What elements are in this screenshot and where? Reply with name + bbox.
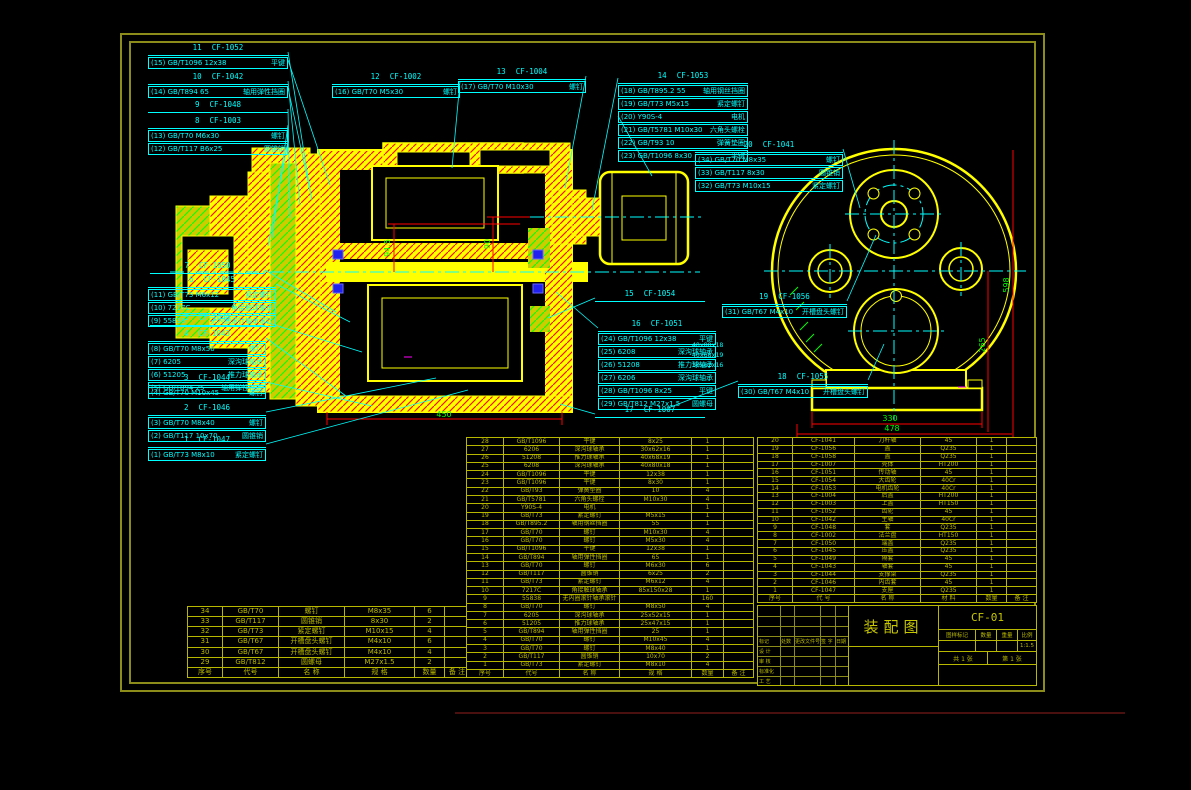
table-row: 10CF-1042主轴40Cr1	[758, 516, 1036, 524]
table-row: 3GB/T70螺钉M8x401	[467, 644, 753, 652]
callout-title: 3CF-1044	[148, 374, 266, 386]
callout-row: (19) GB/T73 M5x15紧定螺钉	[618, 98, 748, 110]
table-cell: 8x30	[344, 617, 414, 626]
table-cell: 1	[976, 462, 1006, 469]
table-cell: 1	[976, 548, 1006, 555]
table-cell: 21	[467, 496, 503, 503]
table-cell: 1	[976, 485, 1006, 492]
table-cell: 4	[467, 637, 503, 644]
callout-row: (8) GB/T70 M8x50螺钉	[148, 343, 266, 355]
table-cell	[723, 579, 753, 586]
role-standardize: 标准化	[759, 668, 774, 675]
table-cell: 紧定螺钉	[278, 627, 344, 636]
table-cell: 平键	[559, 438, 619, 445]
table-cell: 名 称	[278, 668, 344, 677]
table-cell: 5	[758, 556, 792, 563]
title-block-empty-cell	[939, 665, 1036, 685]
table-cell: 推力球轴承	[559, 620, 619, 627]
table-cell: GB/T1096	[503, 479, 559, 486]
table-cell: CF-1056	[792, 446, 854, 453]
table-cell: 10	[758, 517, 792, 524]
table-cell: CF-1050	[792, 540, 854, 547]
table-cell	[1006, 501, 1036, 508]
callout-title: 12CF-1002	[332, 73, 460, 85]
table-row: 8GB/T70螺钉M8x504	[467, 603, 753, 611]
role-process: 工 艺	[759, 678, 771, 685]
table-cell	[723, 504, 753, 511]
table-cell: 1	[691, 521, 723, 528]
table-cell: 螺钉	[559, 537, 619, 544]
table-row: 17GB/T70螺钉M10x304	[467, 528, 753, 536]
table-cell: 1	[976, 572, 1006, 579]
table-cell: 紧定螺钉	[559, 513, 619, 520]
table-cell: 盖	[854, 454, 920, 461]
part-callout: 15CF-1054	[595, 290, 705, 302]
table-cell: Y90S-4	[503, 504, 559, 511]
dim-478: 478	[884, 424, 899, 433]
table-cell: Q235	[920, 524, 976, 531]
table-cell: 6205	[503, 612, 559, 619]
callout-row: (31) GB/T67 M4x10开槽盘头螺钉	[722, 306, 847, 318]
table-row: 13GB/T70螺钉M6x306	[467, 561, 753, 569]
table-cell	[723, 645, 753, 652]
callout-title: 6CF-1045	[148, 276, 276, 288]
table-cell: GB/T70	[503, 604, 559, 611]
table-cell: 1	[691, 546, 723, 553]
table-cell	[723, 637, 753, 644]
table-cell: 40Cr	[920, 477, 976, 484]
table-cell	[723, 471, 753, 478]
table-cell: 法兰盘	[854, 532, 920, 539]
table-cell: GB/T70	[503, 645, 559, 652]
table-cell: GB/T73	[503, 513, 559, 520]
table-row: 107217C角接触球轴承85x150x281	[467, 586, 753, 594]
table-cell: 1	[976, 556, 1006, 563]
table-cell: 15	[467, 546, 503, 553]
table-cell: 2	[691, 653, 723, 660]
table-cell: 4	[691, 604, 723, 611]
table-cell: 1	[976, 564, 1006, 571]
table-cell: CF-1053	[792, 485, 854, 492]
rev-col-mark: 标记	[759, 638, 769, 645]
table-cell: 内齿套	[854, 579, 920, 586]
table-cell: CF-1004	[792, 493, 854, 500]
table-cell: M6x12	[619, 579, 691, 586]
table-cell: 1	[976, 587, 1006, 594]
table-cell: 25	[467, 463, 503, 470]
table-row: 651205推力球轴承25x47x151	[467, 619, 753, 627]
table-cell: HT150	[920, 501, 976, 508]
table-cell: 规 格	[344, 668, 414, 677]
table-cell: 1	[691, 446, 723, 453]
table-cell: 端盖	[854, 540, 920, 547]
part-callout: 19CF-1056(31) GB/T67 M4x10开槽盘头螺钉	[722, 293, 847, 318]
table-cell	[723, 521, 753, 528]
table-cell: 刀杆轴	[854, 438, 920, 445]
dim-450: 450	[436, 410, 451, 419]
table-cell: 6x25	[619, 571, 691, 578]
table-cell: 6	[414, 637, 444, 646]
table-row: 33GB/T117圆锥销8x302	[188, 616, 469, 626]
table-cell	[723, 488, 753, 495]
table-cell: 1	[691, 479, 723, 486]
table-row: 5CF-1049隔套451	[758, 555, 1036, 563]
bearing-size-note: 40x68x19	[692, 351, 723, 359]
table-cell: 4	[691, 496, 723, 503]
callout-title: 19CF-1056	[722, 293, 847, 305]
table-cell: 14	[467, 554, 503, 561]
sheet-number: 第 1 张	[987, 652, 1036, 664]
table-cell: 2	[691, 571, 723, 578]
table-row: 28GB/T1096平键8x251	[467, 438, 753, 445]
bearing-size-note: 40x80x18	[692, 341, 723, 349]
table-cell: M6x30	[619, 562, 691, 569]
table-row: 19CF-1056盖Q2351	[758, 445, 1036, 453]
table-row: 34GB/T70螺钉M8x356	[188, 607, 469, 616]
table-cell: HT200	[920, 493, 976, 500]
table-cell	[1006, 556, 1036, 563]
role-check: 审 核	[759, 658, 771, 665]
table-cell: 圆螺母	[278, 658, 344, 667]
table-cell: 1	[691, 471, 723, 478]
table-cell: 65	[619, 554, 691, 561]
table-cell: 40x68x19	[619, 455, 691, 462]
table-row: 1GB/T73紧定螺钉M8x104	[467, 661, 753, 669]
table-cell	[1006, 477, 1036, 484]
table-cell: 弹簧垫圈	[559, 488, 619, 495]
table-cell	[723, 479, 753, 486]
table-cell	[1006, 485, 1036, 492]
value-qty	[975, 641, 996, 651]
table-cell: 11	[467, 579, 503, 586]
table-row: 14GB/T894轴用弹性挡圈651	[467, 553, 753, 561]
table-row: 序号代号名 称规 格数量备 注	[467, 669, 753, 677]
table-cell: 30	[188, 648, 222, 657]
table-cell: 45	[920, 564, 976, 571]
table-cell: 8	[758, 532, 792, 539]
table-cell: 45	[920, 556, 976, 563]
table-cell: 8x30	[619, 479, 691, 486]
table-cell	[723, 562, 753, 569]
table-row: 30GB/T67开槽盘头螺钉M4x104	[188, 647, 469, 657]
callout-row: (34) GB/T70 M8x35螺钉	[695, 154, 843, 166]
table-cell: 轴用钢丝挡圈	[559, 521, 619, 528]
table-cell: 40x80x18	[619, 463, 691, 470]
table-cell: 17	[758, 462, 792, 469]
part-callout: 8CF-1003(13) GB/T70 M6x30螺钉(12) GB/T117 …	[148, 117, 288, 155]
callout-title: 7CF-1050	[150, 262, 265, 274]
table-cell: GB/T117	[503, 653, 559, 660]
table-cell	[1006, 532, 1036, 539]
drawing-title: 装配图	[849, 606, 938, 647]
table-cell: 螺钉	[559, 604, 619, 611]
callout-title: 5CF-1049	[150, 314, 265, 326]
bom-table-continuation: 34GB/T70螺钉M8x35633GB/T117圆锥销8x30232GB/T7…	[187, 606, 470, 678]
table-cell: M10x30	[619, 529, 691, 536]
table-cell: 4	[691, 662, 723, 669]
table-cell: 4	[691, 529, 723, 536]
field-qty: 数量	[975, 630, 996, 640]
table-row: 4GB/T70螺钉M10x454	[467, 636, 753, 644]
table-cell: 45	[920, 509, 976, 516]
table-cell: 55838	[503, 595, 559, 602]
table-cell: HT150	[920, 532, 976, 539]
table-cell: GB/T70	[503, 537, 559, 544]
part-callout: 20CF-1041(34) GB/T70 M8x35螺钉(33) GB/T117…	[695, 141, 843, 192]
table-cell: 轴用弹性挡圈	[559, 554, 619, 561]
table-cell: Q235	[920, 446, 976, 453]
table-cell	[723, 620, 753, 627]
table-cell: 圆锥销	[559, 571, 619, 578]
table-row: 16GB/T70螺钉M5x304	[467, 536, 753, 544]
table-cell: 12	[758, 501, 792, 508]
table-cell	[1006, 540, 1036, 547]
table-cell: CF-1052	[792, 509, 854, 516]
table-cell: 20	[467, 504, 503, 511]
part-callout: 11CF-1052(15) GB/T1096 12x38平键	[148, 44, 288, 69]
table-cell: 17	[467, 529, 503, 536]
field-mark: 图样标记	[939, 630, 975, 640]
table-cell: M5x15	[619, 513, 691, 520]
table-cell: 40Cr	[920, 517, 976, 524]
table-cell: 代 号	[792, 595, 854, 602]
table-cell: 85x150x28	[619, 587, 691, 594]
table-cell	[1006, 469, 1036, 476]
table-cell: 160	[691, 595, 723, 602]
table-cell	[1006, 462, 1036, 469]
table-cell: 18	[758, 454, 792, 461]
callout-row: (4) GB/T70 M10x45螺钉	[148, 387, 266, 399]
callout-row: (1) GB/T73 M8x10紧定螺钉	[148, 449, 266, 461]
table-cell: 螺钉	[559, 562, 619, 569]
callout-row: (11) GB/T73 M6x12紧定螺钉	[148, 289, 276, 301]
rev-col-date: 日期	[836, 638, 846, 645]
table-cell: 紧定螺钉	[559, 579, 619, 586]
table-row: 18CF-1058盖Q2351	[758, 453, 1036, 461]
title-block: 标记 处数 更改文件号 签 字 日期 设 计 审 核 标准化 工 艺 装配图 C…	[757, 605, 1037, 686]
table-cell: 4	[414, 648, 444, 657]
table-cell: 1	[976, 438, 1006, 445]
table-cell: M4x10	[344, 637, 414, 646]
table-cell: 圆锥销	[278, 617, 344, 626]
table-cell: 盖	[854, 446, 920, 453]
table-cell: 规 格	[619, 670, 691, 677]
table-cell	[723, 546, 753, 553]
bom-table-main: 28GB/T1096平键8x251276206深沟球轴承30x62x161265…	[466, 437, 754, 678]
table-cell: 4	[414, 627, 444, 636]
table-cell: CF-1041	[792, 438, 854, 445]
table-cell: 6208	[503, 463, 559, 470]
table-row: 序号代号名 称规 格数量备 注	[188, 667, 469, 677]
table-cell: 齿轮	[854, 509, 920, 516]
table-cell: 14	[758, 485, 792, 492]
table-cell: 螺钉	[559, 529, 619, 536]
table-row: 29GB/T812圆螺母M27x1.52	[188, 657, 469, 667]
table-cell	[619, 595, 691, 602]
callout-title: 15CF-1054	[595, 290, 705, 302]
table-cell: 序号	[758, 595, 792, 602]
value-mark	[939, 641, 975, 651]
table-row: 4CF-1043轴套451	[758, 563, 1036, 571]
table-cell: M8x35	[344, 607, 414, 616]
table-cell	[723, 529, 753, 536]
callout-row: (13) GB/T70 M6x30螺钉	[148, 130, 288, 142]
table-cell	[723, 463, 753, 470]
callout-row: (12) GB/T117 B6x25圆锥销	[148, 143, 288, 155]
table-cell: 51208	[503, 455, 559, 462]
table-cell	[723, 612, 753, 619]
table-cell	[1006, 572, 1036, 579]
table-cell: 1	[691, 554, 723, 561]
table-row: 22GB/T93弹簧垫圈104	[467, 487, 753, 495]
table-cell: 30x62x16	[619, 446, 691, 453]
table-cell	[723, 628, 753, 635]
part-callout: 3CF-1044(4) GB/T70 M10x45螺钉	[148, 374, 266, 399]
callout-row: (16) GB/T70 M5x30螺钉	[332, 86, 460, 98]
callout-title: 17CF-1007	[595, 406, 705, 418]
table-row: 11GB/T73紧定螺钉M6x124	[467, 578, 753, 586]
table-cell: M5x30	[619, 537, 691, 544]
part-callout: 14CF-1053(18) GB/T895.2 55轴用钢丝挡圈(19) GB/…	[618, 72, 748, 110]
table-cell: 后盖	[854, 493, 920, 500]
callout-row: (28) GB/T1096 8x25平键	[598, 385, 716, 397]
table-cell: 12	[467, 571, 503, 578]
callout-row: (7) 6205深沟球轴承	[148, 356, 266, 368]
part-callout: 5CF-1049	[150, 314, 265, 326]
table-cell	[723, 438, 753, 445]
callout-title: 18CF-1055	[738, 373, 868, 385]
table-cell: M10x30	[619, 496, 691, 503]
underline-artifact	[455, 712, 1125, 714]
table-cell: 轴套	[854, 564, 920, 571]
table-cell: 27	[467, 446, 503, 453]
table-cell: 代号	[503, 670, 559, 677]
table-cell: CF-1048	[792, 524, 854, 531]
table-cell: 16	[467, 537, 503, 544]
table-row: 5GB/T894轴用弹性挡圈251	[467, 627, 753, 635]
table-cell: M27x1.5	[344, 658, 414, 667]
table-cell: 10	[467, 587, 503, 594]
table-cell: 10x70	[619, 653, 691, 660]
leader-line	[565, 76, 586, 188]
table-row: 17CF-1007壳体HT2001	[758, 461, 1036, 469]
table-row: 12CF-1003上盖HT1501	[758, 500, 1036, 508]
table-cell: M4x10	[344, 648, 414, 657]
table-cell: GB/T1096	[503, 438, 559, 445]
table-cell: 序号	[188, 668, 222, 677]
table-cell: CF-1007	[792, 462, 854, 469]
field-scale: 比例	[1017, 630, 1036, 640]
part-callout: 13CF-1004(17) GB/T70 M10x30螺钉	[458, 68, 586, 93]
table-cell: GB/T894	[503, 628, 559, 635]
value-scale: 1:1.5	[1017, 641, 1036, 651]
table-cell: 名 称	[854, 595, 920, 602]
table-row: 3CF-1044支撑架Q2351	[758, 571, 1036, 579]
table-cell: 推力球轴承	[559, 455, 619, 462]
table-cell: 轴用弹性挡圈	[559, 628, 619, 635]
table-cell	[1006, 524, 1036, 531]
table-cell: 11	[758, 509, 792, 516]
table-cell: GB/T67	[222, 637, 278, 646]
table-cell: GB/T93	[503, 488, 559, 495]
callout-row: (3) GB/T70 M8x40螺钉	[148, 417, 266, 429]
table-cell: 1	[691, 513, 723, 520]
table-cell: GB/T812	[222, 658, 278, 667]
table-row: 20Y90S-4电机1	[467, 503, 753, 511]
callout-title: 11CF-1052	[148, 44, 288, 56]
table-cell: HT200	[920, 462, 976, 469]
table-cell: 45	[920, 469, 976, 476]
table-cell: 4	[691, 537, 723, 544]
callout-row: (30) GB/T67 M4x10开槽盘头螺钉	[738, 386, 868, 398]
table-cell: 23	[467, 479, 503, 486]
table-cell: 代号	[222, 668, 278, 677]
table-cell: CF-1003	[792, 501, 854, 508]
table-cell	[1006, 564, 1036, 571]
table-cell: M8x50	[619, 604, 691, 611]
table-cell	[723, 587, 753, 594]
table-cell: 40Cr	[920, 485, 976, 492]
table-cell: CF-1044	[792, 572, 854, 579]
drawing-number: CF-01	[939, 606, 1036, 630]
table-cell: 1	[976, 532, 1006, 539]
table-cell: CF-1049	[792, 556, 854, 563]
part-callout: 10CF-1042(14) GB/T894 65轴用弹性挡圈	[148, 73, 288, 98]
table-row: 9CF-1048套Q2351	[758, 523, 1036, 531]
table-cell	[1006, 548, 1036, 555]
table-cell	[723, 571, 753, 578]
table-cell: 六角头螺栓	[559, 496, 619, 503]
table-cell: 1	[976, 524, 1006, 531]
table-cell: 10	[619, 488, 691, 495]
callout-row: (17) GB/T70 M10x30螺钉	[458, 81, 586, 93]
table-cell: 1	[976, 509, 1006, 516]
rev-col-count: 处数	[781, 638, 791, 645]
table-cell: 无内圈滚针轴承滚针	[559, 595, 619, 602]
table-cell: 平键	[559, 479, 619, 486]
table-cell: GB/T1096	[503, 471, 559, 478]
table-cell: 19	[758, 446, 792, 453]
table-cell: 7	[467, 612, 503, 619]
callout-title: 14CF-1053	[618, 72, 748, 84]
table-cell: 材 料	[920, 595, 976, 602]
table-cell: CF-1043	[792, 564, 854, 571]
table-cell	[723, 496, 753, 503]
bearing-size-note: 30x62x16	[692, 361, 723, 369]
table-cell: M10x45	[619, 637, 691, 644]
rev-col-sign: 签 字	[821, 638, 833, 645]
callout-row: (21) GB/T5781 M10x30六角头螺栓	[618, 124, 748, 136]
table-cell	[723, 653, 753, 660]
table-cell: 6	[691, 562, 723, 569]
table-row: 76205深沟球轴承25x52x151	[467, 611, 753, 619]
table-cell: CF-1045	[792, 548, 854, 555]
part-callout: 7CF-1050	[150, 262, 265, 274]
table-cell: 32	[188, 627, 222, 636]
table-cell: 电机齿轮	[854, 485, 920, 492]
table-cell: CF-1058	[792, 454, 854, 461]
table-cell: 6	[758, 548, 792, 555]
table-cell: 19	[467, 513, 503, 520]
table-cell: GB/T67	[222, 648, 278, 657]
table-row: 序号代 号名 称材 料数量备 注	[758, 594, 1036, 602]
table-row: 31GB/T67开槽盘头螺钉M4x106	[188, 636, 469, 646]
callout-row: (10) 7217C角接触球轴承	[148, 302, 276, 314]
table-cell: 7217C	[503, 587, 559, 594]
callout-row: (15) GB/T1096 12x38平键	[148, 57, 288, 69]
part-callout: 1CF-1047(1) GB/T73 M8x10紧定螺钉	[148, 436, 266, 461]
table-cell: 18	[467, 521, 503, 528]
